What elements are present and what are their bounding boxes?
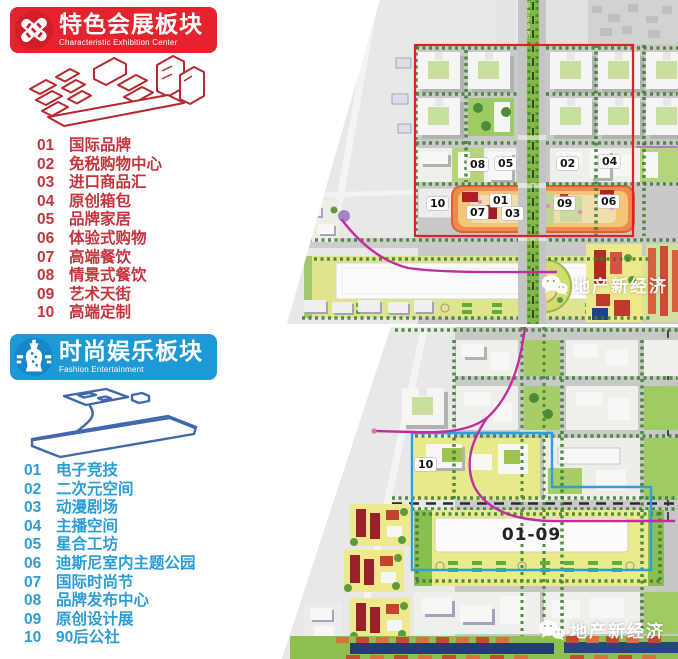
item-label: 原创设计展 [56,611,134,630]
fashion-subtitle: Fashion Entertainment [59,366,203,374]
infographic-page: NG YIHUAN RD 08 05 02 04 10 07 01 03 09 … [0,0,678,659]
item-number: 01 [24,462,56,481]
fashion-list: 01电子竞技 02二次元空间 03动漫剧场 04主播空间 05星合工坊 06迪斯… [24,462,196,648]
map-marker-09: 09 [554,197,575,210]
fashion-title: 时尚娱乐板块 [59,340,203,363]
list-item: 07国际时尚节 [24,574,196,593]
item-number: 01 [37,137,69,156]
item-number: 05 [24,536,56,555]
map-bottom-panel [280,327,678,659]
map-marker-02: 02 [557,157,578,170]
list-item: 06体验式购物 [37,230,162,249]
list-item: 01电子竞技 [24,462,196,481]
map-marker-06: 06 [598,195,619,208]
item-label: 艺术天街 [69,286,131,305]
item-number: 06 [37,230,69,249]
item-label: 情景式餐饮 [69,267,147,286]
item-label: 90后公社 [56,629,120,648]
item-number: 02 [24,481,56,500]
list-item: 10高端定制 [37,304,162,323]
item-label: 主播空间 [56,518,118,537]
item-number: 02 [37,156,69,175]
item-label: 体验式购物 [69,230,147,249]
item-number: 06 [24,555,56,574]
list-item: 04原创箱包 [37,193,162,212]
item-label: 免税购物中心 [69,156,162,175]
item-label: 电子竞技 [56,462,118,481]
list-item: 09原创设计展 [24,611,196,630]
list-item: 03动漫剧场 [24,499,196,518]
list-item: 02二次元空间 [24,481,196,500]
crossed-buildings-icon [14,10,54,50]
item-label: 国际品牌 [69,137,131,156]
left-mid-cluster [300,200,339,242]
item-label: 原创箱包 [69,193,131,212]
dress-form-icon [14,337,54,377]
list-item: 05品牌家居 [37,211,162,230]
item-number: 05 [37,211,69,230]
fashion-banner: 时尚娱乐板块 Fashion Entertainment [10,334,217,380]
item-label: 动漫剧场 [56,499,118,518]
map-marker-08: 08 [467,158,488,171]
item-label: 星合工坊 [56,536,118,555]
map-marker-10-bottom: 10 [415,458,436,471]
fashion-buildings-sketch [20,382,210,460]
road-label: NG YIHUAN RD [526,1,531,71]
list-item: 03进口商品汇 [37,174,162,193]
map-marker-01: 01 [490,194,511,207]
map-marker-04: 04 [599,155,620,168]
item-label: 高端餐饮 [69,249,131,268]
watermark-bottom: 地产新经济 [538,617,665,642]
list-item: 01国际品牌 [37,137,162,156]
item-number: 08 [37,267,69,286]
item-number: 08 [24,592,56,611]
item-label: 品牌发布中心 [56,592,149,611]
item-label: 迪斯尼室内主题公园 [56,555,196,574]
item-number: 07 [24,574,56,593]
item-number: 03 [24,499,56,518]
item-label: 高端定制 [69,304,131,323]
item-label: 品牌家居 [69,211,131,230]
list-item: 06迪斯尼室内主题公园 [24,555,196,574]
item-number: 04 [37,193,69,212]
watermark-text: 地产新经济 [573,272,668,297]
item-number: 10 [37,304,69,323]
exhibition-list: 01国际品牌 02免税购物中心 03进口商品汇 04原创箱包 05品牌家居 06… [37,137,162,323]
list-item: 09艺术天街 [37,286,162,305]
exhibition-banner: 特色会展板块 Characteristic Exhibition Center [10,7,217,53]
exhibition-subtitle: Characteristic Exhibition Center [59,39,203,47]
list-item: 08品牌发布中心 [24,592,196,611]
item-number: 03 [37,174,69,193]
list-item: 05星合工坊 [24,536,196,555]
list-item: 02免税购物中心 [37,156,162,175]
map-marker-05: 05 [495,157,516,170]
list-item: 07高端餐饮 [37,249,162,268]
list-item: 04主播空间 [24,518,196,537]
map-marker-07: 07 [467,206,488,219]
item-number: 09 [37,286,69,305]
item-number: 09 [24,611,56,630]
map-marker-10: 10 [427,197,448,210]
wechat-icon [538,619,565,641]
list-item: 08情景式餐饮 [37,267,162,286]
map-marker-03: 03 [502,207,523,220]
building-label-01-09: 01-09 [435,518,628,552]
item-label: 进口商品汇 [69,174,147,193]
list-item: 1090后公社 [24,629,196,648]
watermark-text: 地产新经济 [570,617,665,642]
item-number: 10 [24,629,56,648]
wechat-icon [541,274,568,296]
exhibition-title: 特色会展板块 [59,13,203,36]
item-label: 二次元空间 [56,481,134,500]
exhibition-buildings-sketch [22,55,207,135]
watermark-top: 地产新经济 [541,272,668,297]
blocks-row1 [456,340,678,376]
item-label: 国际时尚节 [56,574,134,593]
blocks-row2 [402,386,678,430]
item-number: 04 [24,518,56,537]
item-number: 07 [37,249,69,268]
